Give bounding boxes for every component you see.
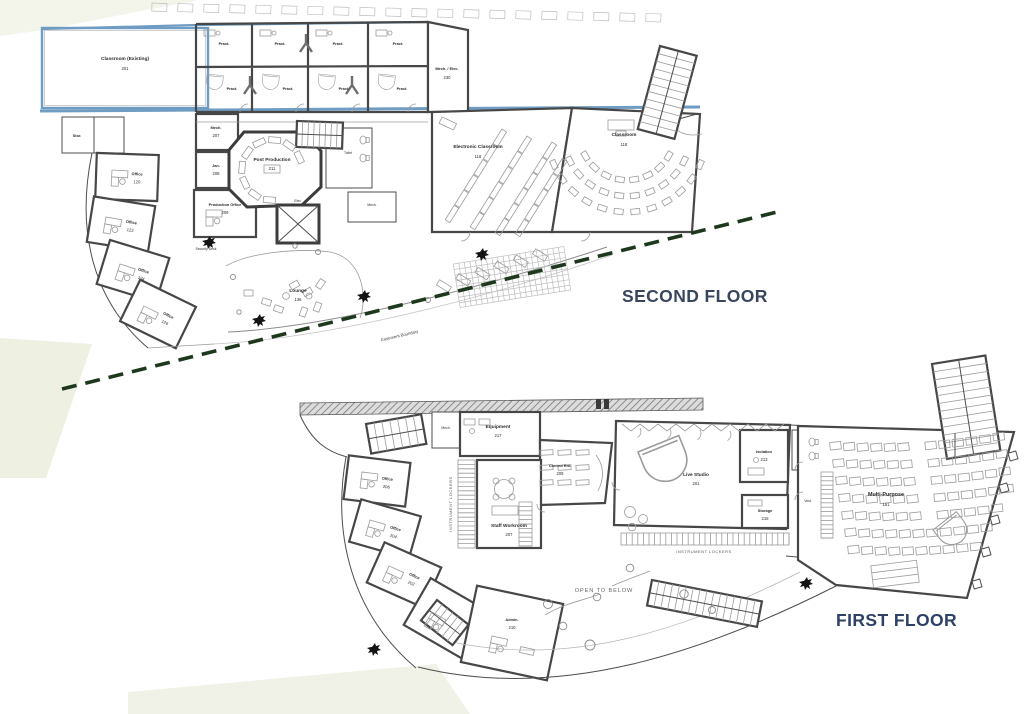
- plan-detail: [272, 31, 276, 35]
- room-label-mech-elec: Mech. / Elec.: [435, 66, 458, 71]
- room-num: 207: [213, 133, 221, 138]
- plan-detail: [568, 12, 583, 21]
- door-arc: [581, 232, 590, 241]
- room-label-vest: Vest.: [804, 499, 812, 503]
- plant-glyph: [252, 314, 266, 327]
- plan-detail: [438, 9, 453, 18]
- plan-detail: [626, 564, 634, 572]
- plan-detail: [360, 7, 375, 16]
- plan-detail: [620, 13, 635, 22]
- room-label-pract: Pract.: [219, 41, 230, 46]
- room-label-lounge: Lounge: [289, 288, 307, 294]
- grand-piano: [261, 74, 279, 90]
- room-label-toilet: Toilet: [344, 151, 352, 155]
- room-label-electronic-classroom: Electronic Classroom: [453, 144, 502, 150]
- room-num: 136: [295, 297, 303, 302]
- room-label-multi-purpose: Multi-Purpose: [868, 492, 904, 498]
- plan-detail: [412, 9, 427, 18]
- security-desk-label: Security Desk: [196, 247, 217, 251]
- plan-detail: [313, 302, 322, 313]
- plan-detail: [316, 250, 321, 255]
- room-num: 207: [506, 532, 514, 537]
- room-num: 201: [693, 481, 701, 486]
- plan-detail: [260, 30, 271, 36]
- room-label-jan: Jan.: [212, 163, 220, 168]
- first-floor-plan: Office 206 Office 204 Office 202 Departm…: [300, 356, 1018, 681]
- lounge-edge: [330, 252, 363, 318]
- room-label-staff-workroom: Staff Workroom: [491, 523, 527, 529]
- plan-detail: [282, 6, 297, 15]
- room-num: 211: [269, 166, 276, 171]
- room-label-equipment: Equipment: [486, 424, 511, 430]
- room-label-elev: Elev.: [294, 199, 301, 203]
- room-label-stor: Stor.: [73, 133, 82, 138]
- open-to-below-label: OPEN TO BELOW: [575, 588, 633, 594]
- room-mech-f1: [432, 412, 460, 448]
- plan-detail: [981, 547, 991, 557]
- plan-detail: [316, 30, 327, 36]
- room-mech-2: [348, 192, 396, 222]
- plan-detail: [264, 76, 278, 77]
- plan-detail: [542, 11, 557, 20]
- plan-detail: [376, 30, 387, 36]
- plan-detail: [559, 622, 567, 630]
- room-label-production-office: Production Office: [209, 202, 242, 207]
- plan-detail: [455, 258, 566, 276]
- walkway-edge: [148, 344, 214, 348]
- floor-plans-svg: Office 120 Office 122 Office 124 Office …: [0, 0, 1024, 714]
- room-label-classroom: Classroom: [612, 132, 637, 138]
- room-label-admin: Admin.: [505, 617, 518, 622]
- stair-lobby: [647, 580, 762, 627]
- room-num: 201: [122, 66, 130, 71]
- plan-detail: [1008, 451, 1018, 461]
- plan-detail: [386, 8, 401, 17]
- room-num: 209: [557, 471, 565, 476]
- room-label-office: Office: [132, 171, 144, 176]
- plant-glyph: [799, 577, 813, 590]
- plan-detail: [244, 290, 253, 296]
- door-mark: [596, 399, 601, 409]
- room-office-1: Office 120: [95, 153, 159, 201]
- plant-glyph: [357, 290, 371, 303]
- acoustic-vestibule: [300, 34, 312, 52]
- room-num: 118: [621, 142, 628, 147]
- room-label-pract: Pract.: [227, 86, 238, 91]
- room-num: 213: [761, 457, 769, 462]
- plan-detail: [216, 31, 220, 35]
- second-floor-plan: Office 120 Office 122 Office 124 Office …: [40, 3, 777, 389]
- room-num: 210: [509, 625, 517, 630]
- room-num: 120: [133, 179, 141, 184]
- plan-detail: [261, 298, 271, 306]
- room-label-pract: Pract.: [339, 86, 350, 91]
- leader-line: [612, 571, 650, 586]
- plan-detail: [464, 10, 479, 19]
- room-label-storage-f1: Storage: [758, 508, 773, 513]
- lounge-edge: [226, 251, 330, 266]
- plan-detail: [990, 515, 1000, 525]
- acoustic-vestibule: [244, 76, 256, 94]
- room-label-mech: Mech.: [210, 125, 221, 130]
- door-arc: [461, 232, 470, 241]
- acoustic-vestibule: [346, 76, 358, 94]
- plan-detail: [231, 275, 236, 280]
- room-label-post-production: Post Production: [253, 157, 290, 163]
- plan-detail: [999, 483, 1009, 493]
- instrument-lockers-label-horizontal: INSTRUMENT LOCKERS: [676, 549, 731, 554]
- plan-detail: [204, 4, 219, 13]
- plan-detail: [516, 11, 531, 20]
- room-label-control: Control Rm.: [549, 463, 571, 468]
- plan-detail: [594, 12, 609, 21]
- plan-detail: [178, 4, 193, 13]
- plan-detail: [436, 280, 451, 293]
- second-floor-label: SECOND FLOOR: [622, 286, 768, 307]
- room-label-live-studio: Live Studio: [683, 472, 709, 478]
- plan-detail: [308, 6, 323, 15]
- plan-detail: [646, 13, 661, 22]
- plant-glyph: [367, 643, 381, 656]
- plan-detail: [256, 5, 271, 14]
- room-num: 217: [495, 433, 503, 438]
- room-label-mech-2: Mech.: [367, 203, 376, 207]
- easement-boundary-label: Easement Boundary: [381, 328, 420, 342]
- office-walls: [95, 153, 159, 201]
- plan-detail: [459, 280, 570, 298]
- room-electronic-classroom: [432, 108, 572, 232]
- room-label-pract: Pract.: [333, 41, 344, 46]
- plan-detail: [299, 307, 308, 318]
- room-label-pract: Pract.: [275, 41, 286, 46]
- room-label-mech-f1: Mech.: [441, 426, 450, 430]
- plan-detail: [208, 76, 222, 77]
- room-num: 215: [762, 516, 770, 521]
- background-patch: [128, 664, 470, 714]
- plan-detail: [328, 31, 332, 35]
- wall: [300, 415, 347, 457]
- room-num: 116: [475, 154, 482, 159]
- room-num: 230: [444, 75, 452, 80]
- background-patch: [0, 338, 92, 478]
- grand-piano: [317, 74, 335, 90]
- plan-detail: [454, 252, 565, 270]
- room-num: 208: [213, 171, 221, 176]
- grand-piano: [377, 74, 395, 90]
- room-label-isolation: Isolation: [756, 449, 773, 454]
- plan-detail: [459, 285, 570, 303]
- plan-detail: [490, 10, 505, 19]
- stair-central: [296, 121, 343, 149]
- existing-building-edge: [152, 3, 661, 22]
- room-label-pract: Pract.: [393, 41, 404, 46]
- plan-detail: [230, 5, 245, 14]
- room-label-pract: Pract.: [397, 86, 408, 91]
- room-num: 151: [883, 502, 891, 507]
- plan-detail: [388, 31, 392, 35]
- plan-detail: [380, 76, 394, 77]
- floor-plan-page: Office 120 Office 122 Office 124 Office …: [0, 0, 1024, 714]
- plan-detail: [593, 593, 601, 601]
- plan-detail: [972, 579, 982, 589]
- room-num: 209: [222, 210, 230, 215]
- plan-detail: [237, 310, 241, 314]
- room-label-classroom-existing: Classroom (Existing): [101, 56, 149, 62]
- room-storage-west: [62, 117, 124, 153]
- plan-detail: [320, 76, 334, 77]
- walls-practice-block: [196, 22, 428, 112]
- plan-detail: [334, 7, 349, 16]
- instrument-lockers-label-vertical: INSTRUMENT LOCKERS: [448, 476, 453, 531]
- plan-detail: [273, 305, 283, 313]
- room-num: 206: [383, 484, 391, 490]
- first-floor-label: FIRST FLOOR: [836, 610, 957, 631]
- room-label-pract: Pract.: [283, 86, 294, 91]
- plan-detail: [315, 279, 325, 290]
- stair-entry: [366, 414, 426, 453]
- door-mark: [604, 399, 609, 409]
